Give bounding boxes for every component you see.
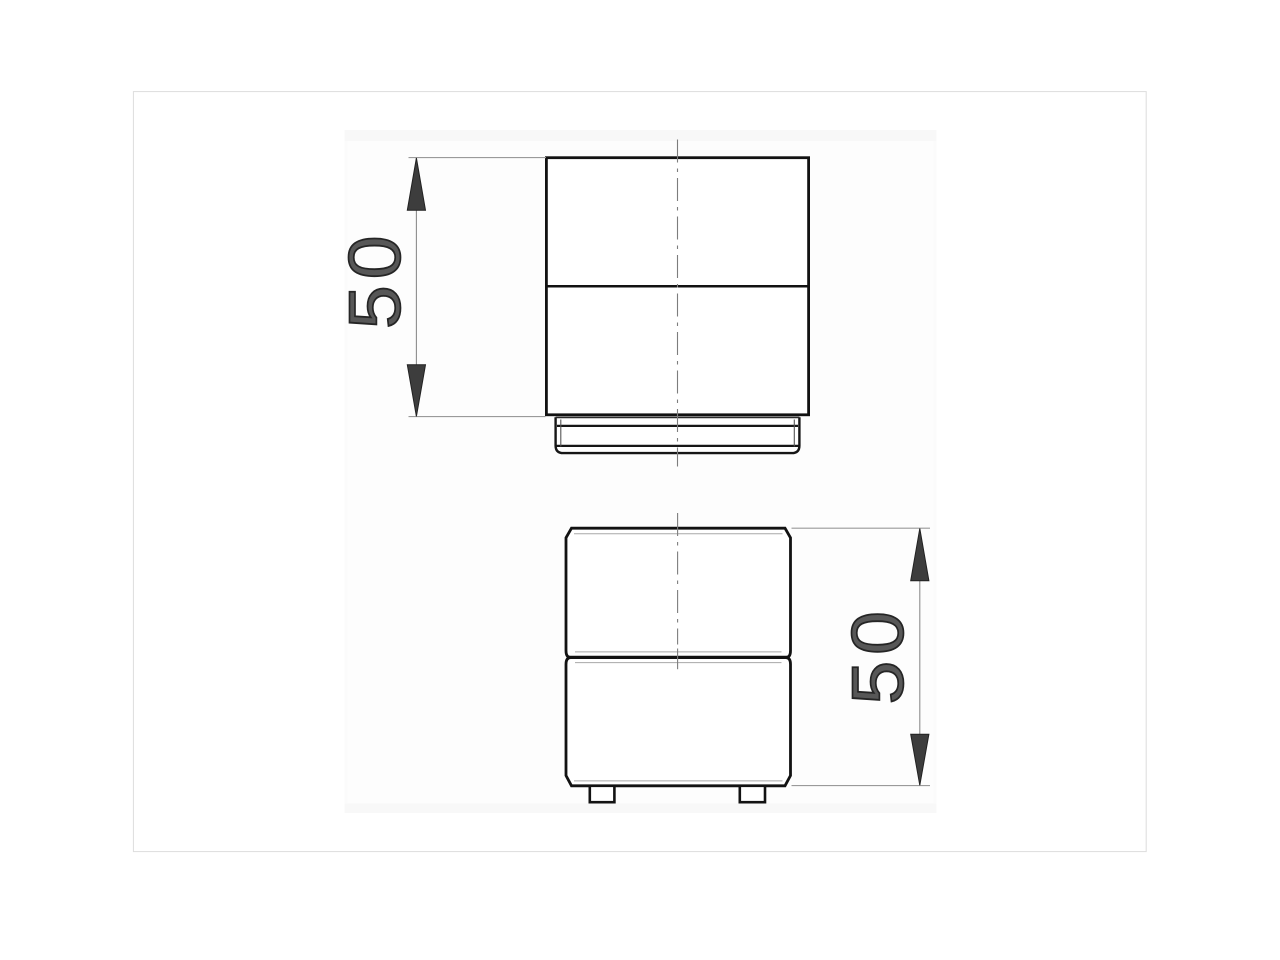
svg-text:50: 50 [838,605,920,705]
svg-text:50: 50 [335,230,417,330]
